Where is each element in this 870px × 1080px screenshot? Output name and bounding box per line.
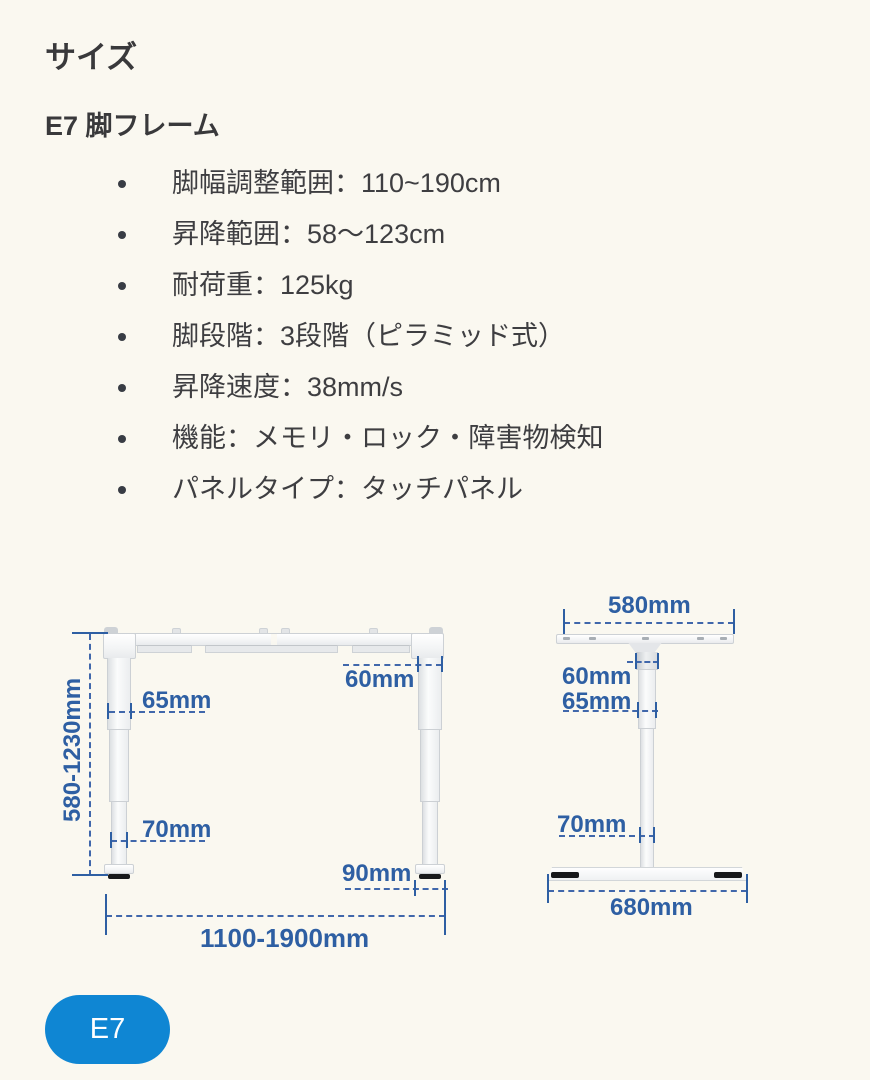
side-column-bottom-segment xyxy=(640,729,654,869)
dim-tick xyxy=(126,832,128,848)
front-foot-glide-width-label: 90mm xyxy=(342,861,411,887)
bracket-screw-slot xyxy=(720,637,727,640)
dim-tick xyxy=(639,827,641,843)
side-foot-depth-label: 680mm xyxy=(610,895,693,921)
side-580mm-dim-line xyxy=(564,622,734,624)
dim-tick xyxy=(414,880,416,896)
model-e7-button[interactable]: E7 xyxy=(45,995,170,1064)
side-680mm-dim-line xyxy=(548,890,747,892)
side-bracket-width-label: 580mm xyxy=(608,593,691,619)
bracket-screw-slot xyxy=(563,637,570,640)
dim-tick xyxy=(72,632,108,634)
dim-tick xyxy=(653,827,655,843)
side-foot-pad-left xyxy=(551,872,579,878)
front-90mm-dim-line xyxy=(345,888,448,890)
dimension-diagram: 60mm 65mm 70mm 90mm 580-1230mm 1100-1900… xyxy=(0,0,870,1080)
front-65mm-dim-line xyxy=(109,711,205,713)
front-right-foot xyxy=(415,864,445,874)
dim-tick xyxy=(107,703,109,719)
front-left-foot-glide xyxy=(108,874,130,879)
front-crossbeam-center-gap xyxy=(271,634,277,645)
front-height-range-label: 580-1230mm xyxy=(58,692,88,822)
bracket-screw-slot xyxy=(697,637,704,640)
side-foot-pad-right xyxy=(714,872,742,878)
front-right-foot-glide xyxy=(419,874,441,879)
side-column-top-width-label: 60mm xyxy=(562,664,631,690)
dim-tick xyxy=(130,703,132,719)
side-65mm-dim-line xyxy=(563,710,658,712)
front-right-mount-plate xyxy=(411,633,444,659)
front-left-leg-top-segment xyxy=(107,658,131,730)
front-right-leg-bottom-segment xyxy=(422,802,438,866)
side-60mm-dim-line xyxy=(627,661,659,663)
bracket-screw-slot xyxy=(589,637,596,640)
dim-tick xyxy=(444,894,446,935)
front-right-leg-mid-segment xyxy=(420,730,440,802)
front-inner-rail xyxy=(205,645,338,653)
bracket-screw-slot xyxy=(642,637,649,640)
front-left-leg-bottom-segment xyxy=(111,802,127,866)
front-inner-rail xyxy=(137,645,192,653)
front-leg-top-width-label: 60mm xyxy=(345,667,414,693)
front-width-range-label: 1100-1900mm xyxy=(200,924,369,953)
front-left-leg-mid-segment xyxy=(109,730,129,802)
dim-tick xyxy=(746,874,748,903)
front-right-leg-top-segment xyxy=(418,658,442,730)
dim-tick xyxy=(657,653,659,669)
dim-tick xyxy=(635,653,637,669)
dim-tick xyxy=(563,609,565,634)
dim-tick xyxy=(637,702,639,718)
dim-tick xyxy=(110,832,112,848)
dim-tick xyxy=(441,656,443,672)
dim-tick xyxy=(655,702,657,718)
dim-tick xyxy=(733,609,735,634)
dim-tick xyxy=(105,894,107,935)
dim-tick xyxy=(547,874,549,903)
front-height-dim-line xyxy=(89,634,91,876)
front-inner-rail xyxy=(352,645,410,653)
front-left-foot xyxy=(104,864,134,874)
dim-tick xyxy=(72,874,108,876)
front-left-mount-plate xyxy=(103,633,136,659)
side-column-mid-segment xyxy=(638,670,656,729)
front-width-dim-line xyxy=(106,915,445,917)
dim-tick xyxy=(417,656,419,672)
